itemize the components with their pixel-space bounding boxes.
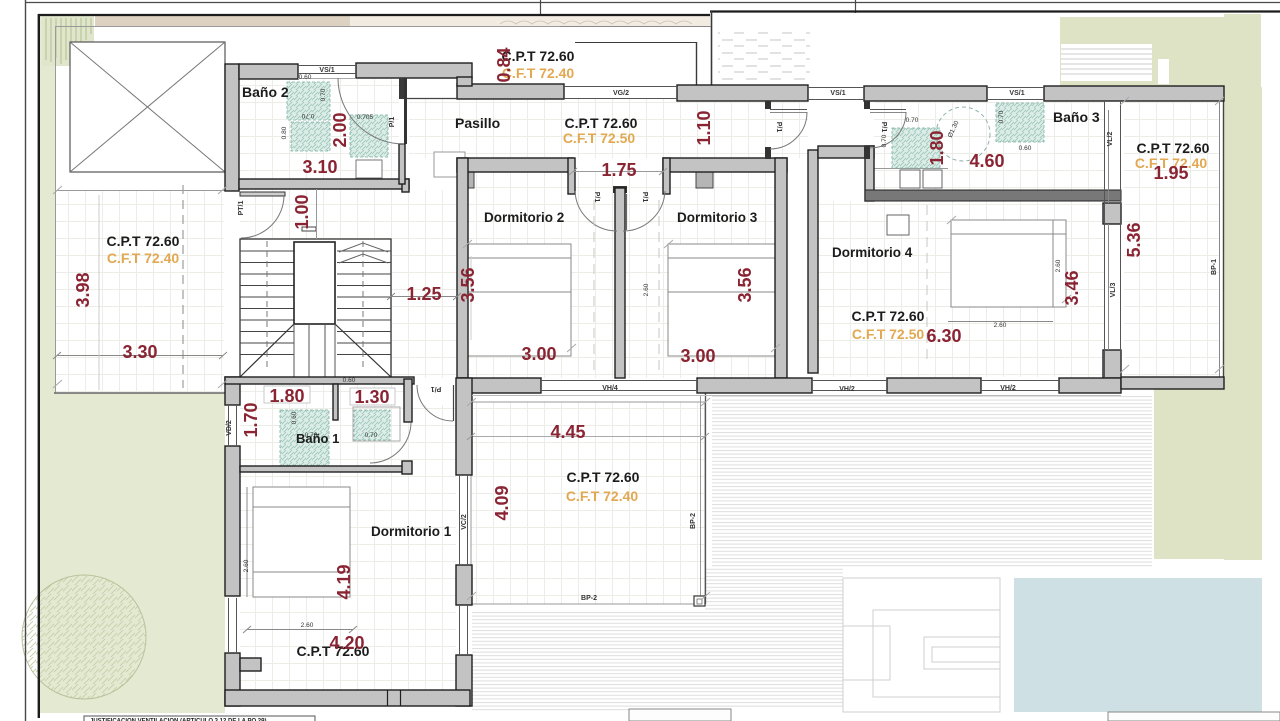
- svg-text:Baño 2: Baño 2: [242, 84, 289, 100]
- svg-text:P/1: P/1: [775, 122, 782, 133]
- svg-text:VH/2: VH/2: [839, 386, 855, 393]
- svg-text:4.45: 4.45: [550, 422, 585, 442]
- svg-text:VS/1: VS/1: [830, 90, 845, 97]
- svg-text:C.P.T 72.60: C.P.T 72.60: [1137, 140, 1210, 156]
- svg-text:VG/2: VG/2: [613, 90, 629, 97]
- svg-text:1.70: 1.70: [241, 402, 261, 437]
- svg-text:2.00: 2.00: [330, 112, 350, 147]
- svg-text:Dormitorio 1: Dormitorio 1: [371, 524, 452, 539]
- svg-text:3.46: 3.46: [1062, 270, 1082, 305]
- svg-text:1.25: 1.25: [406, 284, 441, 304]
- svg-text:1.80: 1.80: [269, 386, 304, 406]
- svg-text:C.F.T 72.50: C.F.T 72.50: [563, 130, 636, 146]
- svg-text:Pasillo: Pasillo: [455, 115, 500, 131]
- svg-text:2.60: 2.60: [301, 622, 314, 629]
- svg-text:5.36: 5.36: [1124, 222, 1144, 257]
- svg-text:6.30: 6.30: [926, 326, 961, 346]
- svg-text:1.80: 1.80: [927, 130, 947, 165]
- svg-text:0.70: 0.70: [301, 112, 314, 119]
- svg-text:2.60: 2.60: [243, 559, 250, 572]
- svg-text:0.70: 0.70: [320, 88, 327, 101]
- svg-text:0.70: 0.70: [365, 432, 378, 439]
- svg-text:2.60: 2.60: [1055, 259, 1062, 272]
- svg-text:Baño 1: Baño 1: [296, 431, 339, 446]
- svg-text:VD/2: VD/2: [226, 420, 233, 436]
- svg-text:C.P.T 72.60: C.P.T 72.60: [567, 469, 640, 485]
- svg-text:0.60: 0.60: [343, 377, 356, 384]
- svg-text:VS/1: VS/1: [319, 67, 334, 74]
- svg-text:1.75: 1.75: [601, 160, 636, 180]
- svg-text:2.60: 2.60: [994, 322, 1007, 329]
- svg-text:4.60: 4.60: [969, 151, 1004, 171]
- svg-text:3.10: 3.10: [302, 157, 337, 177]
- svg-text:3.00: 3.00: [680, 346, 715, 366]
- svg-text:0.60: 0.60: [299, 74, 312, 81]
- svg-text:0.70: 0.70: [305, 432, 318, 439]
- svg-text:0.84: 0.84: [494, 47, 514, 82]
- svg-text:3.30: 3.30: [122, 342, 157, 362]
- svg-text:P/1: P/1: [593, 192, 600, 203]
- svg-text:Dormitorio 4: Dormitorio 4: [832, 245, 913, 260]
- svg-text:C.F.T 72.40: C.F.T 72.40: [566, 488, 639, 504]
- svg-text:BP-2: BP-2: [690, 513, 697, 529]
- svg-text:0.80: 0.80: [281, 126, 288, 139]
- svg-text:0.60: 0.60: [291, 411, 298, 424]
- svg-text:P/1: P/1: [431, 385, 442, 392]
- svg-text:C.F.T 72.40: C.F.T 72.40: [107, 250, 180, 266]
- svg-text:C.P.T 72.60: C.P.T 72.60: [565, 115, 638, 131]
- svg-text:4.20: 4.20: [329, 633, 364, 653]
- svg-text:0.705: 0.705: [357, 114, 374, 121]
- svg-text:0.70: 0.70: [998, 110, 1005, 123]
- svg-text:BP-2: BP-2: [581, 595, 597, 602]
- svg-text:0.70: 0.70: [906, 117, 919, 124]
- svg-text:3.56: 3.56: [735, 267, 755, 302]
- svg-text:C.F.T 72.50: C.F.T 72.50: [852, 326, 925, 342]
- svg-text:VC/2: VC/2: [461, 514, 468, 530]
- svg-text:PT/1: PT/1: [238, 201, 245, 216]
- svg-text:VH/2: VH/2: [1000, 385, 1016, 392]
- svg-text:P/1: P/1: [880, 122, 887, 133]
- svg-text:VL/3: VL/3: [1110, 283, 1117, 298]
- svg-text:2.60: 2.60: [643, 283, 650, 296]
- svg-text:Dormitorio 3: Dormitorio 3: [677, 210, 758, 225]
- svg-text:3.98: 3.98: [73, 272, 93, 307]
- svg-text:1.30: 1.30: [354, 387, 389, 407]
- svg-text:Baño 3: Baño 3: [1053, 109, 1100, 125]
- svg-text:C.P.T 72.60: C.P.T 72.60: [107, 233, 180, 249]
- svg-text:C.P.T 72.60: C.P.T 72.60: [852, 308, 925, 324]
- svg-text:P/1: P/1: [641, 192, 648, 203]
- svg-text:P/1: P/1: [389, 117, 396, 128]
- svg-text:1.95: 1.95: [1153, 163, 1188, 183]
- svg-text:Dormitorio 2: Dormitorio 2: [484, 210, 564, 225]
- svg-text:VS/1: VS/1: [1009, 90, 1024, 97]
- svg-text:1.10: 1.10: [694, 110, 714, 145]
- svg-text:VL/2: VL/2: [1107, 132, 1114, 147]
- svg-text:4.19: 4.19: [334, 564, 354, 599]
- svg-text:0.60: 0.60: [1019, 145, 1032, 152]
- svg-text:3.00: 3.00: [521, 344, 556, 364]
- svg-text:BP-1: BP-1: [1211, 259, 1218, 275]
- svg-text:3.56: 3.56: [458, 267, 478, 302]
- svg-text:1.00: 1.00: [292, 194, 312, 229]
- svg-text:0.70: 0.70: [881, 134, 888, 147]
- svg-text:VH/4: VH/4: [602, 385, 618, 392]
- svg-text:4.09: 4.09: [492, 485, 512, 520]
